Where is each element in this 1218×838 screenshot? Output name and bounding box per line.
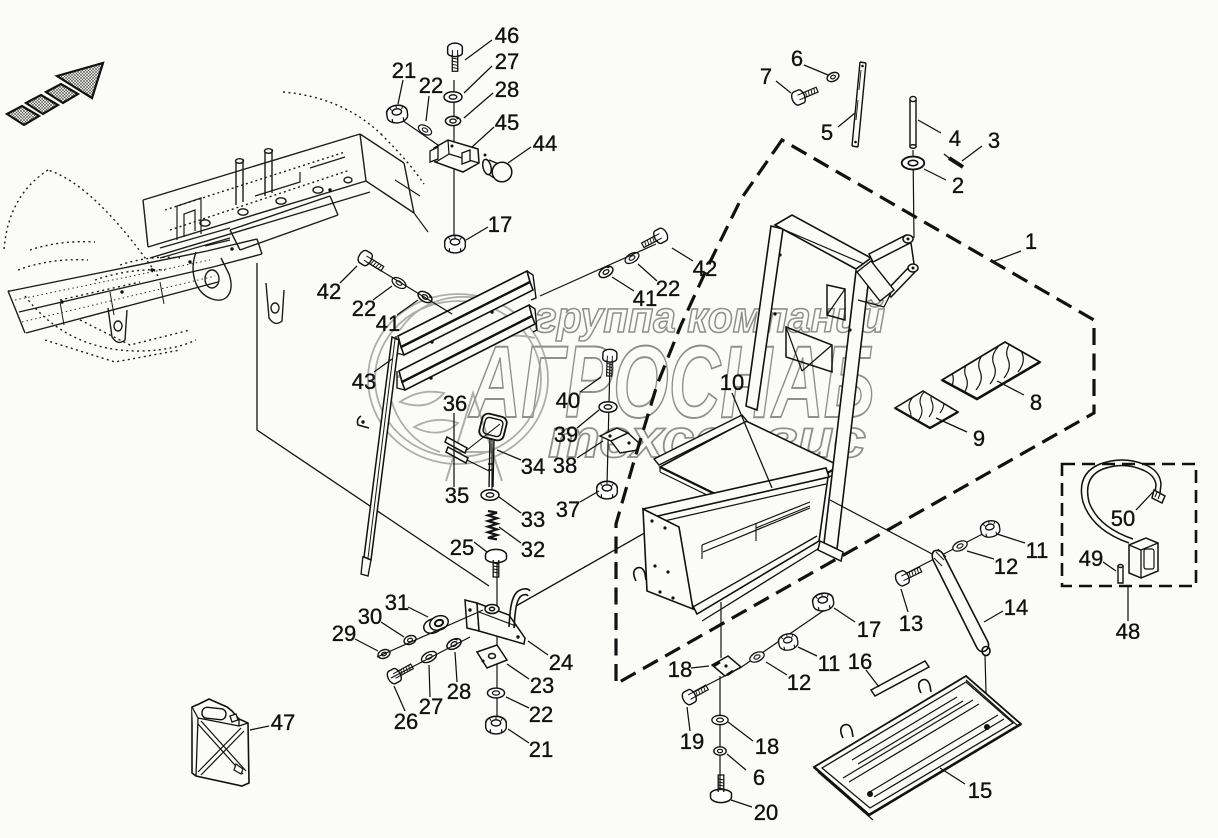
svg-text:5: 5 bbox=[821, 120, 833, 145]
svg-text:20: 20 bbox=[754, 800, 778, 825]
svg-text:33: 33 bbox=[521, 507, 545, 532]
svg-text:29: 29 bbox=[332, 621, 356, 646]
svg-text:9: 9 bbox=[973, 426, 985, 451]
svg-text:35: 35 bbox=[445, 483, 469, 508]
svg-text:11: 11 bbox=[1026, 538, 1049, 563]
svg-text:28: 28 bbox=[495, 77, 519, 102]
svg-text:31: 31 bbox=[385, 590, 409, 615]
svg-text:15: 15 bbox=[968, 778, 992, 803]
svg-text:1: 1 bbox=[1025, 229, 1037, 254]
svg-text:18: 18 bbox=[755, 734, 779, 759]
svg-text:21: 21 bbox=[392, 58, 416, 83]
svg-text:27: 27 bbox=[419, 694, 443, 719]
svg-text:50: 50 bbox=[1111, 506, 1135, 531]
svg-text:47: 47 bbox=[271, 710, 295, 735]
svg-text:16: 16 bbox=[848, 649, 872, 674]
svg-text:43: 43 bbox=[352, 369, 376, 394]
svg-text:40: 40 bbox=[556, 388, 580, 413]
svg-text:26: 26 bbox=[394, 709, 418, 734]
svg-text:36: 36 bbox=[443, 391, 467, 416]
svg-text:32: 32 bbox=[521, 537, 545, 562]
svg-text:13: 13 bbox=[899, 611, 923, 636]
svg-text:7: 7 bbox=[760, 64, 772, 89]
svg-text:24: 24 bbox=[549, 650, 573, 675]
svg-text:8: 8 bbox=[1030, 390, 1042, 415]
svg-text:12: 12 bbox=[787, 670, 811, 695]
svg-text:22: 22 bbox=[656, 276, 680, 301]
svg-text:4: 4 bbox=[949, 126, 961, 151]
svg-text:42: 42 bbox=[693, 256, 717, 281]
svg-text:30: 30 bbox=[358, 604, 382, 629]
svg-text:41: 41 bbox=[633, 286, 657, 311]
svg-text:38: 38 bbox=[553, 453, 577, 478]
svg-text:22: 22 bbox=[419, 73, 443, 98]
svg-text:28: 28 bbox=[447, 679, 471, 704]
svg-text:23: 23 bbox=[530, 673, 554, 698]
svg-text:11: 11 bbox=[818, 651, 841, 676]
svg-text:19: 19 bbox=[680, 729, 704, 754]
svg-text:6: 6 bbox=[791, 46, 803, 71]
svg-text:6: 6 bbox=[753, 765, 765, 790]
svg-text:18: 18 bbox=[668, 657, 692, 682]
svg-text:34: 34 bbox=[521, 454, 545, 479]
svg-text:46: 46 bbox=[495, 23, 519, 48]
svg-text:42: 42 bbox=[317, 279, 341, 304]
svg-text:41: 41 bbox=[376, 311, 400, 336]
svg-text:25: 25 bbox=[450, 535, 474, 560]
svg-text:37: 37 bbox=[556, 497, 580, 522]
svg-text:10: 10 bbox=[720, 370, 744, 395]
svg-text:48: 48 bbox=[1116, 619, 1140, 644]
svg-text:22: 22 bbox=[352, 296, 376, 321]
svg-text:39: 39 bbox=[554, 422, 578, 447]
svg-text:22: 22 bbox=[529, 702, 553, 727]
svg-text:27: 27 bbox=[495, 49, 519, 74]
svg-text:45: 45 bbox=[495, 110, 519, 135]
svg-text:49: 49 bbox=[1079, 546, 1103, 571]
svg-text:2: 2 bbox=[952, 173, 964, 198]
svg-text:17: 17 bbox=[488, 212, 512, 237]
svg-text:14: 14 bbox=[1004, 595, 1028, 620]
svg-text:3: 3 bbox=[988, 128, 1000, 153]
svg-text:21: 21 bbox=[529, 737, 553, 762]
svg-text:44: 44 bbox=[533, 131, 557, 156]
svg-text:12: 12 bbox=[994, 554, 1018, 579]
svg-text:17: 17 bbox=[857, 617, 881, 642]
